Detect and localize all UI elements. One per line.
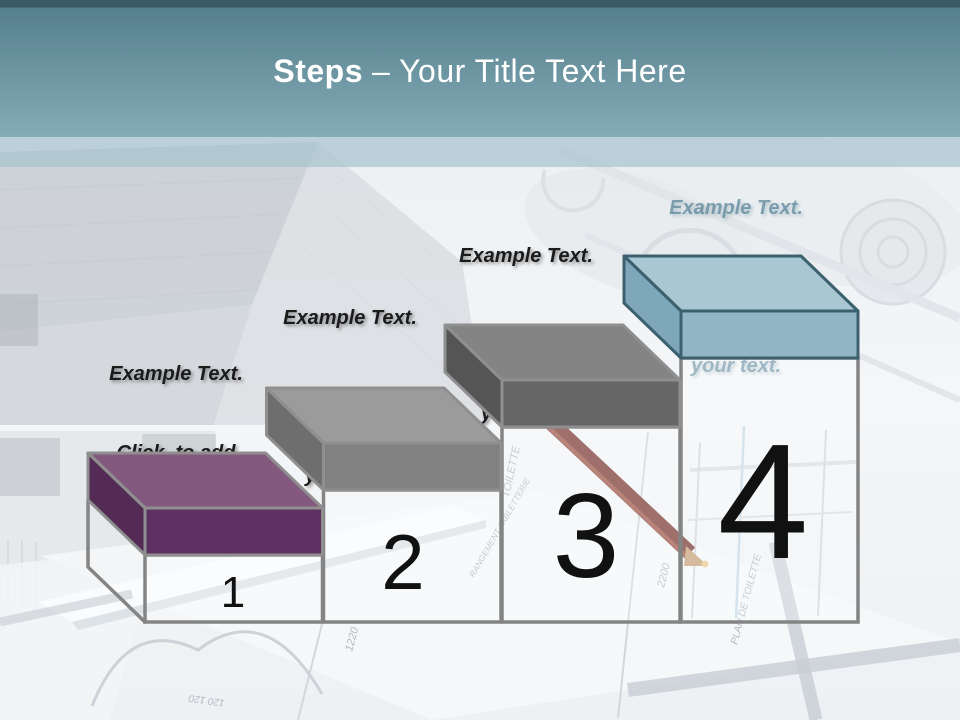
caption-line: Click to add — [646, 274, 826, 300]
title-keyword: Steps — [273, 53, 363, 89]
caption-line: your text. — [436, 401, 616, 427]
caption-line: your text. — [86, 519, 266, 545]
caption-line: Click to add — [86, 440, 266, 466]
slide-header: Steps– Your Title Text Here — [0, 0, 960, 137]
caption-line: Example Text. — [646, 195, 826, 221]
caption-line: your text. — [646, 353, 826, 379]
step-3-caption[interactable]: Example Text. Click to add your text. — [436, 190, 616, 454]
plan-label-120: 120 120 — [188, 692, 226, 708]
caption-line: Example Text. — [436, 243, 616, 269]
step-4-caption[interactable]: Example Text. Click to add your text. — [646, 142, 826, 406]
caption-line: Example Text. — [260, 305, 440, 331]
step-1-caption[interactable]: Example Text. Click to add your text. — [86, 308, 266, 572]
caption-line: Example Text. — [86, 361, 266, 387]
slide-title: Steps– Your Title Text Here — [0, 54, 960, 89]
caption-line: Click to add — [260, 384, 440, 410]
caption-line: Click to add — [436, 322, 616, 348]
caption-line: your text. — [260, 463, 440, 489]
step-2-caption[interactable]: Example Text. Click to add your text. — [260, 252, 440, 516]
title-text: – Your Title Text Here — [372, 53, 687, 89]
